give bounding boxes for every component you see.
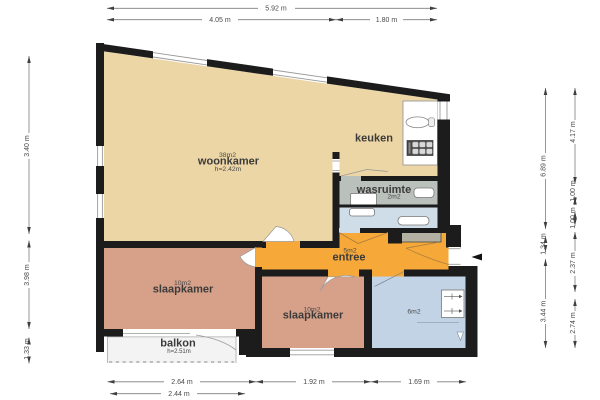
- svg-text:4.05 m: 4.05 m: [209, 17, 231, 24]
- svg-text:3.40 m: 3.40 m: [24, 135, 31, 157]
- svg-text:1.00 m: 1.00 m: [570, 180, 577, 202]
- svg-text:2.37 m: 2.37 m: [570, 252, 577, 274]
- svg-text:2.44 m: 2.44 m: [168, 391, 190, 398]
- svg-text:2.64 m: 2.64 m: [171, 379, 193, 386]
- svg-text:2m2: 2m2: [387, 193, 400, 200]
- svg-text:1.80 m: 1.80 m: [376, 17, 398, 24]
- svg-text:6.89 m: 6.89 m: [541, 155, 548, 177]
- svg-text:1.00 m: 1.00 m: [570, 207, 577, 229]
- svg-text:5.92 m: 5.92 m: [265, 6, 287, 13]
- svg-text:keuken: keuken: [355, 133, 393, 145]
- svg-text:h=2.51m: h=2.51m: [167, 349, 191, 355]
- svg-text:3.98 m: 3.98 m: [24, 264, 31, 286]
- svg-text:entree: entree: [332, 252, 365, 264]
- svg-text:1.92 m: 1.92 m: [303, 379, 325, 386]
- svg-text:h=2.42m: h=2.42m: [215, 166, 242, 173]
- svg-text:slaapkamer: slaapkamer: [153, 283, 214, 295]
- svg-text:6m2: 6m2: [407, 309, 420, 316]
- svg-text:slaapkamer: slaapkamer: [283, 310, 344, 322]
- svg-text:1.69 m: 1.69 m: [408, 379, 430, 386]
- svg-text:balkon: balkon: [160, 338, 196, 350]
- svg-text:2.74 m: 2.74 m: [570, 312, 577, 334]
- svg-text:3.44 m: 3.44 m: [541, 301, 548, 323]
- svg-text:4.17 m: 4.17 m: [570, 121, 577, 143]
- svg-text:wasruimte: wasruimte: [356, 184, 411, 196]
- svg-text:1.34 m: 1.34 m: [541, 233, 548, 255]
- svg-text:1.33 m: 1.33 m: [24, 338, 31, 360]
